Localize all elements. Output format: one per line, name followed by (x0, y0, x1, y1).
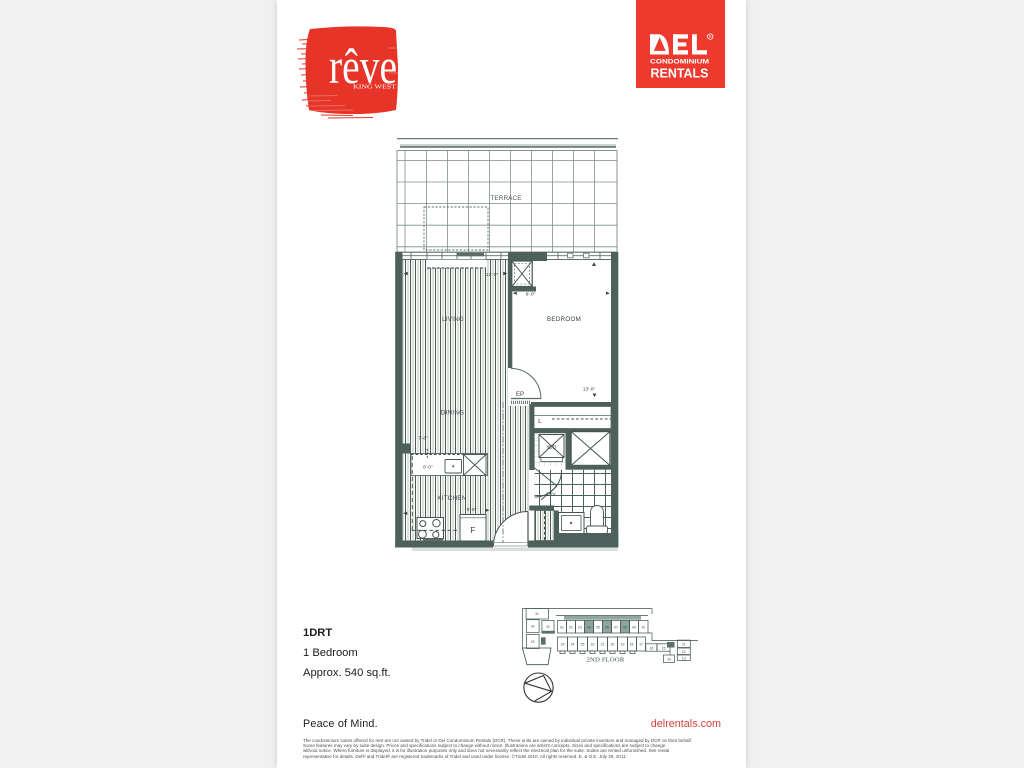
svg-text:8'-0": 8'-0" (526, 291, 536, 297)
svg-text:19: 19 (621, 643, 625, 647)
svg-text:23: 23 (561, 643, 565, 647)
svg-text:13'-0": 13'-0" (583, 387, 596, 393)
svg-text:13: 13 (682, 657, 686, 661)
svg-text:04: 04 (587, 626, 591, 630)
svg-text:03: 03 (578, 626, 582, 630)
svg-text:8'-0": 8'-0" (423, 464, 433, 470)
svg-text:L: L (538, 418, 542, 425)
svg-text:30: 30 (531, 625, 535, 629)
svg-text:BEDROOM: BEDROOM (547, 316, 581, 323)
svg-text:14: 14 (667, 658, 671, 662)
svg-text:2ND FLOOR: 2ND FLOOR (587, 657, 625, 664)
svg-text:TERRACE: TERRACE (490, 195, 521, 202)
svg-text:RENTALS: RENTALS (651, 65, 709, 80)
svg-text:W/D: W/D (547, 445, 557, 451)
svg-text:01: 01 (560, 626, 564, 630)
svg-text:25: 25 (581, 643, 585, 647)
svg-text:10: 10 (641, 626, 645, 630)
svg-text:5'-0": 5'-0" (467, 507, 477, 513)
svg-text:KING WEST: KING WEST (353, 84, 396, 91)
svg-text:08: 08 (623, 626, 627, 630)
svg-text:22: 22 (591, 643, 595, 647)
svg-text:02: 02 (569, 626, 573, 630)
svg-text:18: 18 (630, 643, 634, 647)
svg-text:24: 24 (571, 643, 575, 647)
svg-text:15: 15 (662, 646, 666, 650)
svg-text:7'-8": 7'-8" (418, 436, 428, 442)
svg-text:05: 05 (596, 626, 600, 630)
svg-text:31: 31 (535, 612, 539, 616)
svg-text:ERV: ERV (546, 492, 556, 497)
svg-text:R: R (709, 34, 712, 39)
svg-text:12: 12 (682, 650, 686, 654)
svg-text:16: 16 (650, 646, 654, 650)
svg-text:12'-0": 12'-0" (486, 272, 499, 278)
svg-text:EP: EP (516, 392, 524, 398)
svg-text:KITCHEN: KITCHEN (437, 495, 466, 502)
svg-text:29: 29 (531, 640, 535, 644)
svg-text:DINING: DINING (441, 410, 464, 417)
svg-text:11: 11 (682, 643, 686, 647)
svg-text:LIVING: LIVING (442, 316, 464, 323)
svg-text:17: 17 (639, 643, 643, 647)
svg-text:21: 21 (601, 643, 605, 647)
svg-text:20: 20 (611, 643, 615, 647)
svg-text:09: 09 (632, 626, 636, 630)
svg-text:32: 32 (546, 625, 550, 629)
svg-text:06: 06 (605, 626, 609, 630)
svg-text:F: F (470, 525, 475, 535)
svg-text:07: 07 (614, 626, 618, 630)
svg-text:CONDOMINIUM: CONDOMINIUM (650, 58, 710, 65)
